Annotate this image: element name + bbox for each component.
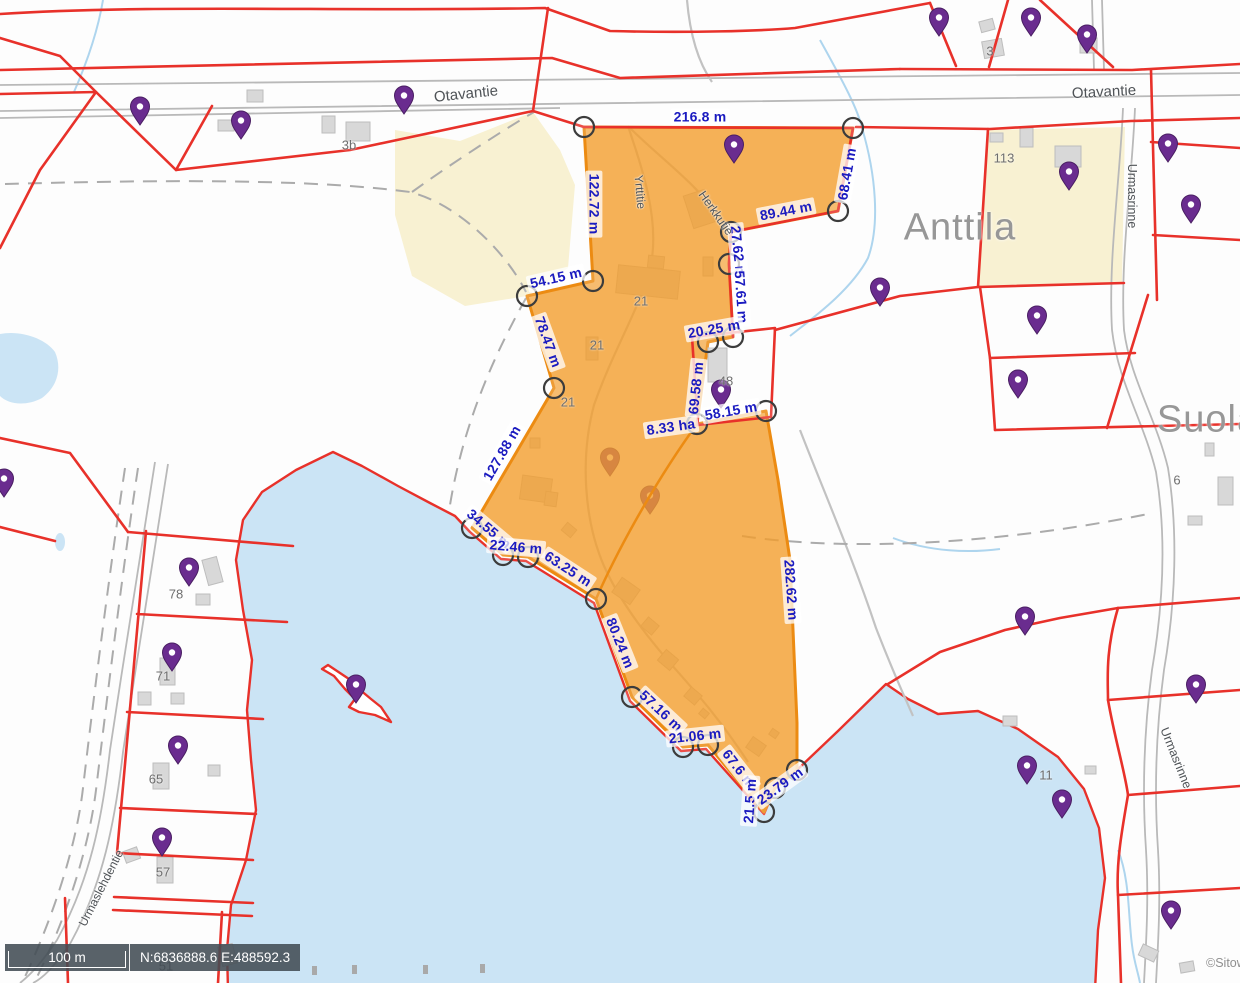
clipped-label-mark	[312, 966, 317, 975]
building	[157, 857, 173, 883]
map-canvas[interactable]	[0, 0, 1240, 983]
building	[196, 594, 210, 605]
building	[1020, 128, 1033, 147]
map-viewport[interactable]: 216.8 m122.72 m68.41 m89.44 m27.62 m57.6…	[0, 0, 1240, 983]
building	[1188, 516, 1202, 525]
vertex-marker[interactable]	[673, 737, 693, 757]
building	[1205, 443, 1214, 456]
vertex-marker[interactable]	[828, 201, 848, 221]
building	[1003, 716, 1017, 726]
scale-bar: 100 m N:6836888.6 E:488592.3	[5, 944, 300, 971]
vertex-marker[interactable]	[518, 547, 538, 567]
vertex-marker[interactable]	[719, 254, 739, 274]
scale-distance-label: 100 m	[48, 950, 86, 965]
vertex-marker[interactable]	[756, 401, 776, 421]
vertex-marker[interactable]	[754, 802, 774, 822]
building	[208, 765, 220, 776]
building	[322, 116, 335, 133]
building	[1085, 766, 1096, 774]
vertex-marker[interactable]	[493, 545, 513, 565]
vertex-marker[interactable]	[544, 378, 564, 398]
building	[990, 133, 1003, 142]
building	[171, 693, 184, 704]
vertex-marker[interactable]	[698, 735, 718, 755]
clipped-label-mark	[352, 965, 357, 974]
building	[138, 692, 151, 705]
vertex-marker[interactable]	[687, 414, 707, 434]
vertex-marker[interactable]	[765, 778, 785, 798]
building	[346, 122, 370, 141]
scale-bar-distance: 100 m	[5, 944, 129, 971]
building	[1179, 961, 1195, 973]
vertex-marker[interactable]	[517, 286, 537, 306]
clipped-label-mark	[480, 964, 485, 973]
building	[247, 90, 263, 102]
vertex-marker[interactable]	[723, 327, 743, 347]
building	[1218, 477, 1233, 505]
coordinate-readout: N:6836888.6 E:488592.3	[129, 944, 300, 971]
copyright-attribution: ©Sitow	[1206, 956, 1240, 970]
vertex-marker[interactable]	[843, 118, 863, 138]
vertex-marker[interactable]	[462, 518, 482, 538]
vertex-marker[interactable]	[574, 117, 594, 137]
clipped-label-mark	[423, 965, 428, 974]
building	[708, 348, 727, 382]
vertex-marker[interactable]	[583, 271, 603, 291]
vertex-marker[interactable]	[622, 687, 642, 707]
building	[153, 763, 169, 789]
vertex-marker[interactable]	[787, 760, 807, 780]
vertex-marker[interactable]	[721, 222, 741, 242]
vertex-marker[interactable]	[698, 332, 718, 352]
vertex-marker[interactable]	[586, 589, 606, 609]
